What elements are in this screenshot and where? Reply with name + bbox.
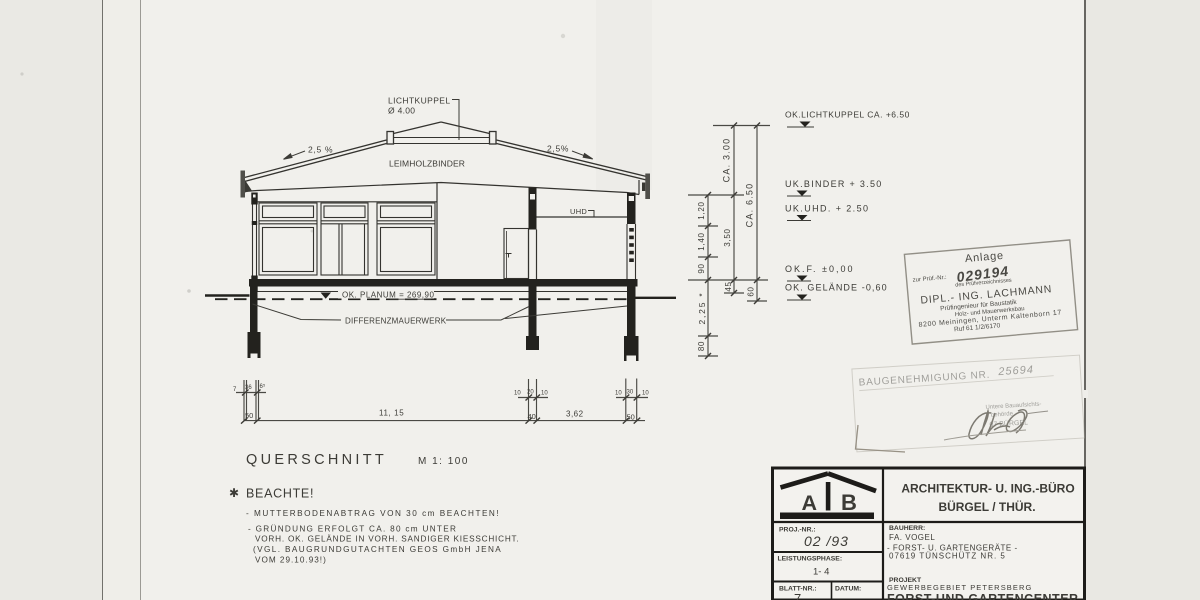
svg-text:CA. 6.50: CA. 6.50 — [745, 183, 755, 228]
svg-text:M 1: 100: M 1: 100 — [418, 456, 469, 467]
svg-text:CA. 3.00: CA. 3.00 — [722, 138, 732, 183]
svg-text:40: 40 — [528, 412, 536, 421]
svg-text:10: 10 — [514, 391, 521, 397]
svg-text:50: 50 — [245, 411, 253, 420]
svg-text:BÜRGEL / THÜR.: BÜRGEL / THÜR. — [938, 499, 1035, 514]
svg-text:ARCHITEKTUR- U. ING.-BÜRO: ARCHITEKTUR- U. ING.-BÜRO — [901, 481, 1074, 496]
svg-text:UK.BINDER + 3.50: UK.BINDER + 3.50 — [785, 179, 883, 189]
svg-text:DATUM:: DATUM: — [835, 586, 861, 593]
svg-text:A: A — [802, 491, 818, 515]
svg-text:BEACHTE!: BEACHTE! — [246, 487, 314, 501]
svg-text:OK. PLANUM = 269,90: OK. PLANUM = 269,90 — [342, 291, 434, 300]
svg-text:UHD: UHD — [570, 207, 587, 216]
svg-text:B: B — [841, 490, 857, 515]
svg-text:10: 10 — [642, 391, 649, 397]
svg-text:10: 10 — [615, 391, 622, 397]
svg-text:FORST-UND GARTENCENTER: FORST-UND GARTENCENTER — [887, 592, 1079, 600]
svg-text:50: 50 — [627, 413, 635, 422]
svg-text:VORH. OK. GELÄNDE IN VORH.: VORH. OK. GELÄNDE IN VORH. SANDIGER KIES… — [255, 534, 520, 544]
svg-text:11, 15: 11, 15 — [379, 409, 404, 418]
svg-text:20: 20 — [527, 390, 534, 396]
svg-text:(VGL. BAUGRUNDGUTACHTEN GEOS: (VGL. BAUGRUNDGUTACHTEN GEOS GmbH JENA — [253, 545, 502, 554]
svg-text:1,20: 1,20 — [697, 201, 706, 219]
svg-text:45: 45 — [724, 281, 733, 291]
svg-text:07619 TÜNSCHÜTZ NR. 5: 07619 TÜNSCHÜTZ NR. 5 — [889, 552, 1006, 561]
svg-text:2,5 %: 2,5 % — [308, 145, 333, 155]
svg-text:60: 60 — [747, 286, 756, 296]
svg-text:- GRÜNDUNG ERFOLGT CA. 80 cm: - GRÜNDUNG ERFOLGT CA. 80 cm UNTER — [248, 524, 457, 534]
svg-text:2,25 *: 2,25 * — [697, 291, 707, 324]
svg-text:FA. VOGEL: FA. VOGEL — [889, 533, 935, 542]
svg-text:DIFFERENZMAUERWERK: DIFFERENZMAUERWERK — [345, 317, 447, 326]
svg-text:3,50: 3,50 — [723, 228, 732, 246]
svg-text:UK.UHD. + 2.50: UK.UHD. + 2.50 — [785, 204, 869, 214]
svg-text:6⁵: 6⁵ — [260, 383, 266, 390]
svg-text:QUERSCHNITT: QUERSCHNITT — [246, 452, 387, 468]
svg-text:OK.LICHTKUPPEL CA. +6.50: OK.LICHTKUPPEL CA. +6.50 — [785, 110, 910, 120]
svg-text:25694: 25694 — [997, 364, 1034, 378]
svg-text:30: 30 — [627, 390, 634, 396]
svg-text:LEISTUNGSPHASE:: LEISTUNGSPHASE: — [778, 556, 843, 563]
svg-text:GEWERBEGEBIET PETERSBERG: GEWERBEGEBIET PETERSBERG — [887, 583, 1032, 592]
svg-text:7: 7 — [794, 591, 801, 600]
svg-text:- MUTTERBODENABTRAG VON 30 c: - MUTTERBODENABTRAG VON 30 cm BEACHTEN! — [246, 509, 500, 518]
svg-text:VOM 29.10.93!): VOM 29.10.93!) — [255, 556, 327, 565]
svg-text:Ø 4.00: Ø 4.00 — [388, 106, 415, 116]
svg-text:10: 10 — [541, 391, 548, 397]
svg-text:80: 80 — [697, 341, 706, 351]
svg-text:OK.F. ±0,00: OK.F. ±0,00 — [785, 264, 854, 274]
svg-text:OK. GELÄNDE -0,60: OK. GELÄNDE -0,60 — [785, 283, 888, 293]
svg-text:90: 90 — [697, 263, 706, 273]
svg-text:1- 4: 1- 4 — [813, 567, 829, 578]
svg-text:36: 36 — [245, 385, 252, 391]
svg-text:LICHTKUPPEL: LICHTKUPPEL — [388, 96, 451, 106]
svg-text:LEIMHOLZBINDER: LEIMHOLZBINDER — [389, 159, 465, 169]
svg-text:02 /93: 02 /93 — [804, 533, 849, 549]
svg-text:2,5%: 2,5% — [547, 144, 569, 154]
svg-text:3,62: 3,62 — [566, 410, 584, 419]
svg-text:1,40: 1,40 — [697, 232, 706, 250]
svg-text:✱: ✱ — [229, 486, 240, 500]
svg-text:BAUHERR:: BAUHERR: — [889, 525, 925, 532]
